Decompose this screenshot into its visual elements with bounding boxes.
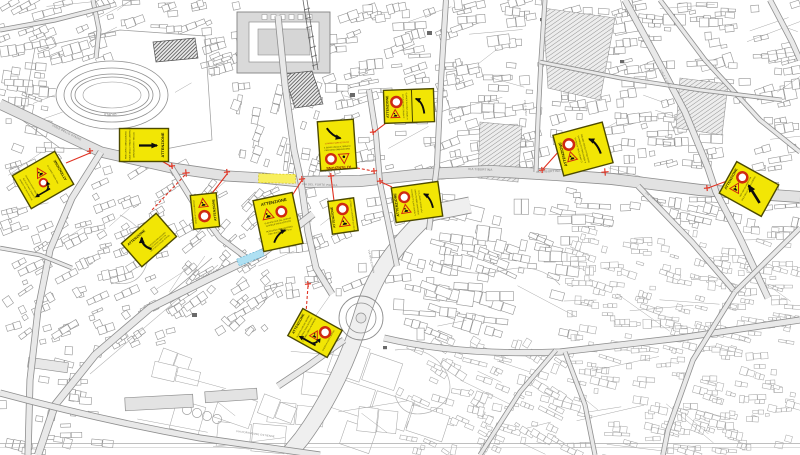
svg-text:VIALE DELLO STADIO CENTRO: VIALE DELLO STADIO CENTRO xyxy=(129,129,132,160)
svg-text:ATTENZIONE: ATTENZIONE xyxy=(385,95,390,118)
svg-text:STADIO: STADIO xyxy=(104,113,117,117)
svg-text:ATTENZIONE: ATTENZIONE xyxy=(161,132,165,157)
svg-text:PERCORSO OBBLIGATORIO: PERCORSO OBBLIGATORIO xyxy=(125,131,128,159)
svg-text:CHIUSA A TUTTI I VEICOLI: CHIUSA A TUTTI I VEICOLI xyxy=(133,132,136,158)
